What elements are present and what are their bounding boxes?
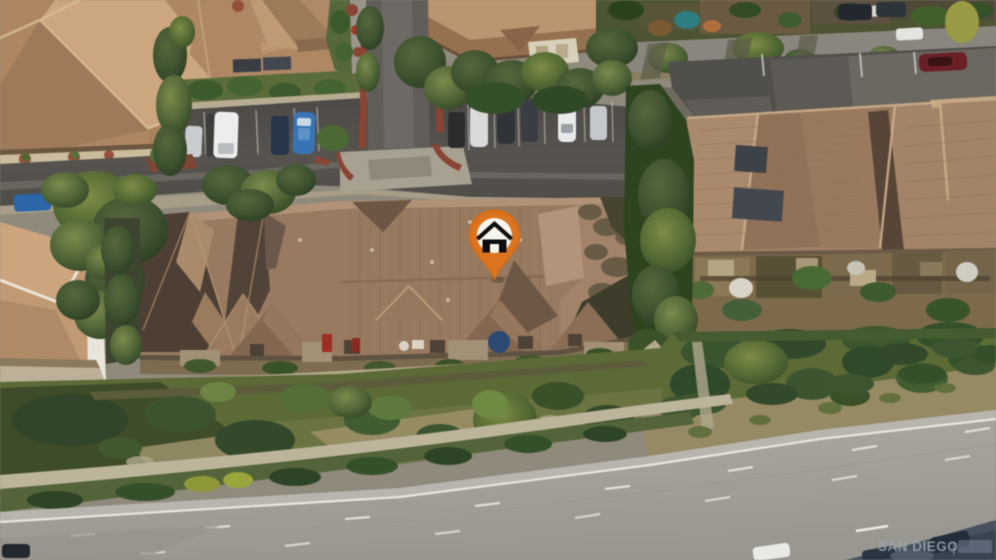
svg-text:|: | bbox=[952, 539, 956, 555]
svg-text:SAN DIEGO: SAN DIEGO bbox=[878, 539, 958, 554]
